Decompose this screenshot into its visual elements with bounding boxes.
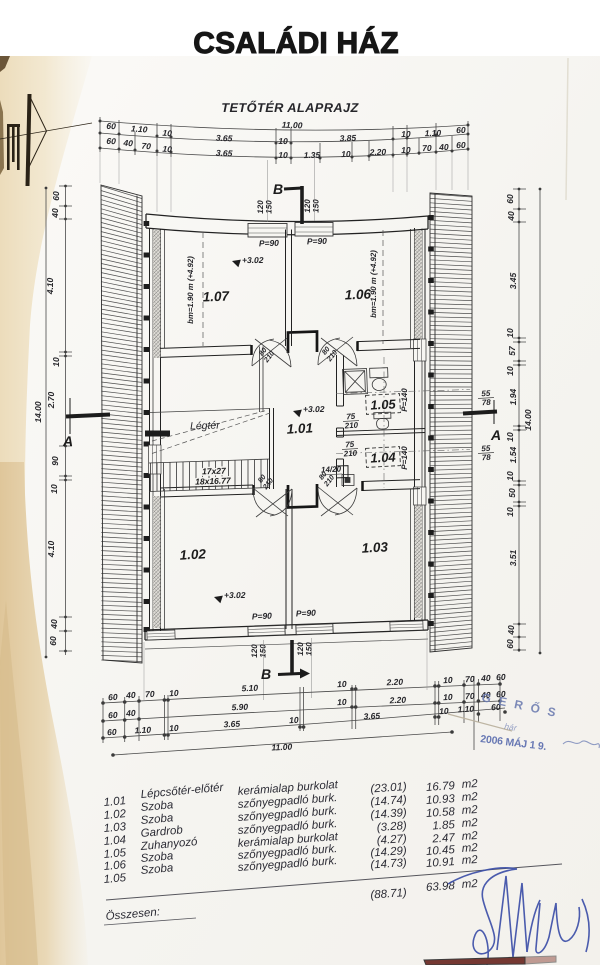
svg-text:4.10: 4.10 — [45, 277, 55, 295]
svg-text:(88.71): (88.71) — [370, 887, 407, 902]
svg-text:m2: m2 — [461, 791, 478, 804]
svg-text:60: 60 — [505, 194, 515, 204]
svg-text:60: 60 — [107, 727, 117, 737]
svg-text:4.10: 4.10 — [46, 540, 56, 558]
svg-text:40: 40 — [480, 673, 491, 684]
svg-text:3.65: 3.65 — [223, 719, 240, 730]
svg-text:10: 10 — [439, 706, 449, 716]
svg-text:3.65: 3.65 — [216, 133, 233, 144]
svg-text:1.10: 1.10 — [134, 725, 151, 736]
svg-text:55: 55 — [481, 444, 491, 453]
svg-text:bm=1.90 m (+4.92): bm=1.90 m (+4.92) — [369, 250, 378, 318]
svg-text:P=90: P=90 — [252, 610, 273, 621]
svg-text:150: 150 — [312, 199, 321, 213]
svg-text:70: 70 — [145, 689, 155, 699]
svg-text:A: A — [490, 427, 501, 443]
svg-text:10: 10 — [51, 357, 61, 367]
svg-text:60: 60 — [106, 121, 116, 131]
svg-text:14.00: 14.00 — [33, 401, 43, 423]
svg-text:3.45: 3.45 — [508, 272, 518, 289]
svg-text:10: 10 — [162, 128, 172, 139]
svg-text:10: 10 — [505, 328, 515, 338]
svg-text:TETŐTÉR ALAPRAJZ: TETŐTÉR ALAPRAJZ — [221, 100, 359, 115]
svg-text:10: 10 — [505, 471, 515, 481]
svg-text:A: A — [62, 433, 73, 449]
svg-text:16.79: 16.79 — [426, 780, 456, 794]
svg-text:1.85: 1.85 — [432, 819, 456, 833]
svg-text:150: 150 — [259, 644, 268, 658]
svg-text:150: 150 — [305, 642, 314, 656]
svg-text:55: 55 — [481, 389, 491, 398]
svg-text:5.90: 5.90 — [231, 702, 248, 713]
svg-text:P=90: P=90 — [296, 607, 317, 618]
svg-text:1.02: 1.02 — [179, 546, 207, 562]
svg-text:P=140: P=140 — [400, 446, 409, 470]
svg-text:10: 10 — [169, 723, 179, 733]
svg-text:10.93: 10.93 — [426, 793, 456, 807]
svg-text:3.65: 3.65 — [216, 148, 233, 159]
svg-text:B: B — [261, 666, 271, 682]
svg-text:3.85: 3.85 — [339, 133, 356, 144]
svg-text:78: 78 — [482, 453, 492, 462]
svg-text:1.07: 1.07 — [202, 288, 230, 304]
svg-text:70: 70 — [422, 143, 432, 153]
svg-text:1.35: 1.35 — [304, 150, 321, 160]
svg-text:2.70: 2.70 — [46, 391, 56, 409]
svg-text:m2: m2 — [461, 817, 478, 830]
svg-text:40: 40 — [506, 211, 516, 222]
svg-text:11.00: 11.00 — [271, 741, 292, 752]
svg-text:CSALÁDI HÁZ: CSALÁDI HÁZ — [193, 26, 399, 60]
svg-text:m2: m2 — [461, 878, 478, 891]
svg-text:10: 10 — [162, 144, 172, 155]
svg-text:60: 60 — [108, 692, 118, 702]
svg-text:40: 40 — [50, 208, 60, 219]
svg-text:11.00: 11.00 — [282, 120, 303, 131]
svg-text:3.51: 3.51 — [508, 549, 518, 566]
svg-text:(14.73): (14.73) — [370, 857, 407, 872]
svg-text:2.20: 2.20 — [388, 695, 406, 706]
svg-text:3.65: 3.65 — [363, 711, 380, 722]
svg-text:(14.74): (14.74) — [370, 794, 407, 809]
svg-text:40: 40 — [125, 690, 136, 701]
svg-text:10: 10 — [341, 149, 351, 159]
svg-text:210: 210 — [342, 448, 357, 458]
svg-text:60: 60 — [51, 191, 61, 201]
svg-text:+3.02: +3.02 — [303, 404, 325, 414]
svg-text:70: 70 — [465, 674, 475, 684]
svg-text:10.58: 10.58 — [426, 806, 456, 820]
svg-text:60: 60 — [108, 710, 118, 720]
svg-text:10: 10 — [337, 679, 347, 689]
svg-text:2.20: 2.20 — [385, 677, 403, 688]
svg-text:P=90: P=90 — [307, 236, 328, 247]
svg-text:Légtér: Légtér — [190, 419, 221, 432]
svg-text:1.10: 1.10 — [424, 128, 441, 139]
svg-text:1.01: 1.01 — [286, 420, 313, 436]
svg-text:40: 40 — [506, 625, 516, 636]
svg-text:150: 150 — [265, 200, 274, 214]
svg-text:10: 10 — [289, 715, 299, 725]
svg-text:10: 10 — [505, 366, 515, 376]
svg-text:2.20: 2.20 — [368, 147, 386, 158]
svg-text:40: 40 — [122, 138, 133, 149]
svg-text:60: 60 — [48, 636, 58, 646]
svg-text:60: 60 — [106, 136, 116, 146]
svg-text:+3.02: +3.02 — [224, 590, 246, 600]
svg-text:(14.39): (14.39) — [370, 807, 407, 822]
svg-text:1.03: 1.03 — [103, 821, 127, 835]
svg-text:10: 10 — [49, 484, 59, 494]
svg-text:40: 40 — [49, 619, 59, 630]
svg-text:1.04: 1.04 — [103, 834, 126, 848]
svg-text:10: 10 — [169, 688, 179, 698]
svg-text:1.06: 1.06 — [103, 859, 127, 873]
svg-text:(3.28): (3.28) — [376, 820, 407, 834]
svg-text:60: 60 — [505, 639, 515, 649]
svg-text:1.05: 1.05 — [103, 872, 127, 886]
svg-text:P=90: P=90 — [259, 238, 280, 249]
svg-text:1.10: 1.10 — [131, 123, 148, 134]
svg-text:P=140: P=140 — [400, 388, 409, 412]
svg-text:m2: m2 — [461, 778, 478, 791]
svg-text:90: 90 — [50, 456, 60, 466]
svg-text:B: B — [273, 181, 283, 197]
svg-text:10: 10 — [505, 507, 515, 517]
svg-text:1.10: 1.10 — [457, 704, 474, 715]
svg-text:10.91: 10.91 — [426, 856, 456, 870]
svg-text:10: 10 — [401, 129, 411, 139]
svg-text:(23.01): (23.01) — [370, 781, 407, 796]
svg-text:1.06: 1.06 — [344, 287, 371, 303]
svg-text:60: 60 — [496, 672, 506, 682]
svg-text:40: 40 — [125, 708, 136, 719]
svg-text:m2: m2 — [461, 804, 478, 817]
svg-text:70: 70 — [141, 141, 151, 152]
svg-text:10: 10 — [278, 136, 288, 146]
svg-text:m2: m2 — [461, 854, 478, 867]
svg-text:1.54: 1.54 — [508, 446, 518, 463]
svg-text:1.94: 1.94 — [508, 388, 518, 405]
svg-text:60: 60 — [456, 125, 466, 135]
svg-text:70: 70 — [465, 691, 475, 701]
svg-text:1.03: 1.03 — [361, 539, 389, 555]
svg-text:50: 50 — [507, 488, 517, 498]
svg-text:1.01: 1.01 — [103, 795, 126, 809]
svg-text:40: 40 — [438, 142, 449, 152]
svg-text:+3.02: +3.02 — [242, 255, 264, 265]
svg-text:78: 78 — [482, 398, 492, 407]
svg-text:10: 10 — [505, 432, 515, 442]
svg-text:10: 10 — [443, 692, 453, 702]
svg-text:5.10: 5.10 — [241, 683, 258, 694]
svg-text:18x16.77: 18x16.77 — [195, 475, 232, 486]
svg-text:1.05: 1.05 — [370, 396, 397, 412]
svg-text:10: 10 — [337, 697, 347, 707]
svg-text:1.02: 1.02 — [103, 808, 127, 822]
svg-text:10: 10 — [401, 145, 411, 155]
svg-text:10: 10 — [443, 675, 453, 685]
svg-text:210: 210 — [343, 420, 358, 430]
svg-text:57: 57 — [507, 345, 517, 356]
svg-text:14.00: 14.00 — [523, 409, 533, 431]
svg-text:bm=1.90 m (+4.92): bm=1.90 m (+4.92) — [186, 256, 195, 324]
svg-text:10: 10 — [278, 150, 288, 160]
svg-text:60: 60 — [456, 140, 466, 150]
svg-text:1.04: 1.04 — [370, 449, 397, 465]
